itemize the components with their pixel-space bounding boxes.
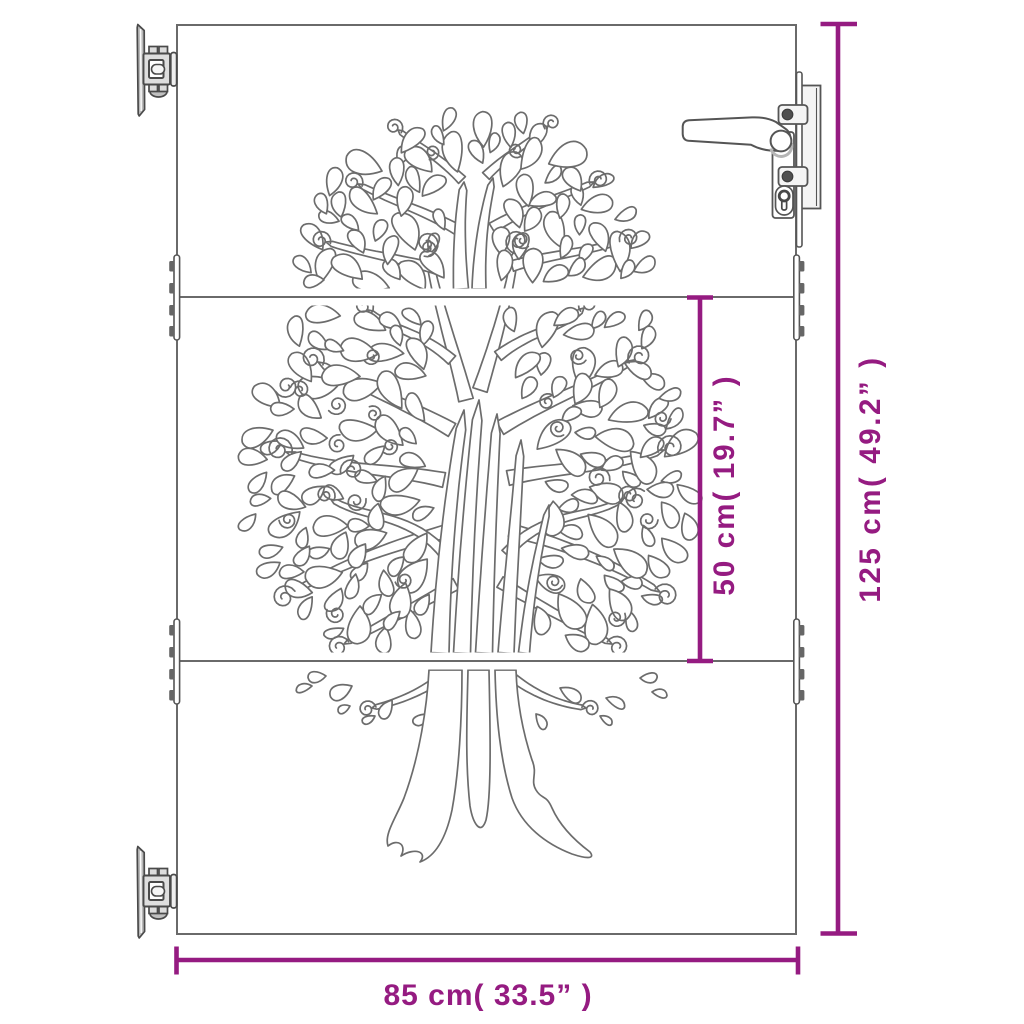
svg-text:85 cm( 33.5” ): 85 cm( 33.5” ): [383, 979, 592, 1012]
svg-text:125 cm( 49.2” ): 125 cm( 49.2” ): [854, 355, 887, 602]
svg-text:50 cm( 19.7” ): 50 cm( 19.7” ): [708, 374, 741, 595]
